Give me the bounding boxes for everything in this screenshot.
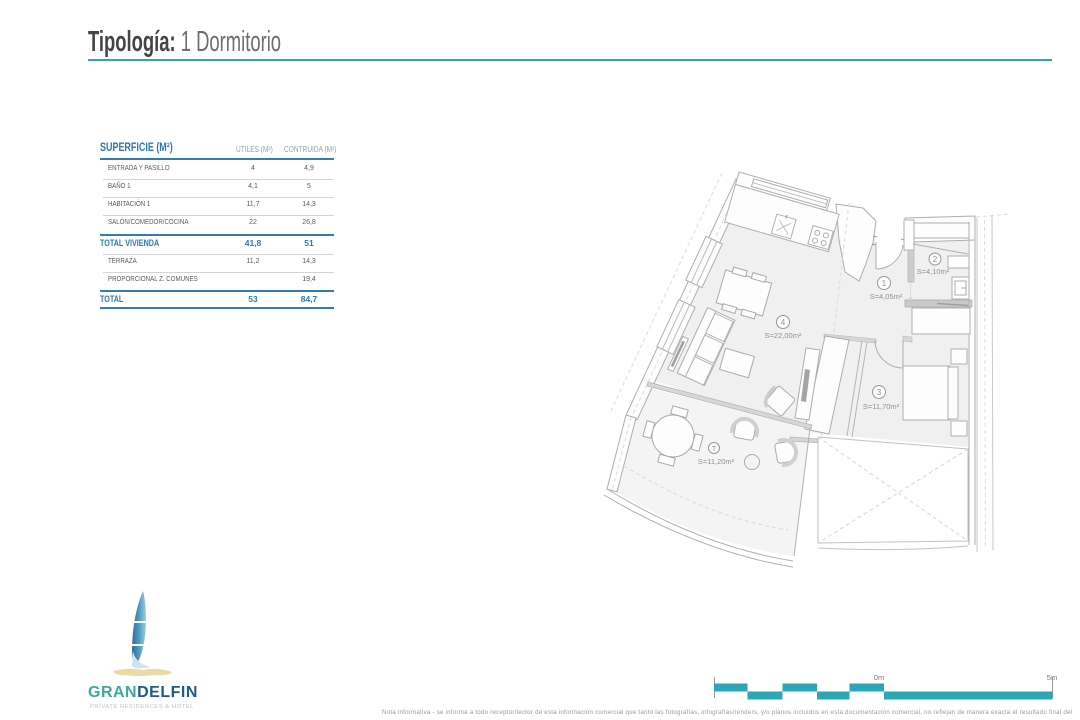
- svg-text:S=11,20m²: S=11,20m²: [698, 457, 735, 466]
- svg-text:S=22,00m²: S=22,00m²: [765, 331, 802, 340]
- svg-text:5m: 5m: [1047, 673, 1057, 682]
- svg-text:PRIVATE RESIDENCES & HOTEL: PRIVATE RESIDENCES & HOTEL: [90, 704, 194, 710]
- svg-text:S=4,05m²: S=4,05m²: [870, 292, 903, 301]
- svg-text:S=4,10m²: S=4,10m²: [917, 267, 950, 276]
- svg-text:3: 3: [877, 388, 882, 397]
- svg-text:S=11,70m²: S=11,70m²: [863, 402, 900, 411]
- svg-text:4: 4: [781, 318, 786, 327]
- svg-text:T: T: [712, 446, 717, 453]
- svg-text:GRANDELFIN: GRANDELFIN: [88, 684, 198, 701]
- svg-text:1: 1: [882, 279, 887, 288]
- svg-text:2: 2: [933, 255, 938, 264]
- svg-text:0m: 0m: [874, 673, 884, 682]
